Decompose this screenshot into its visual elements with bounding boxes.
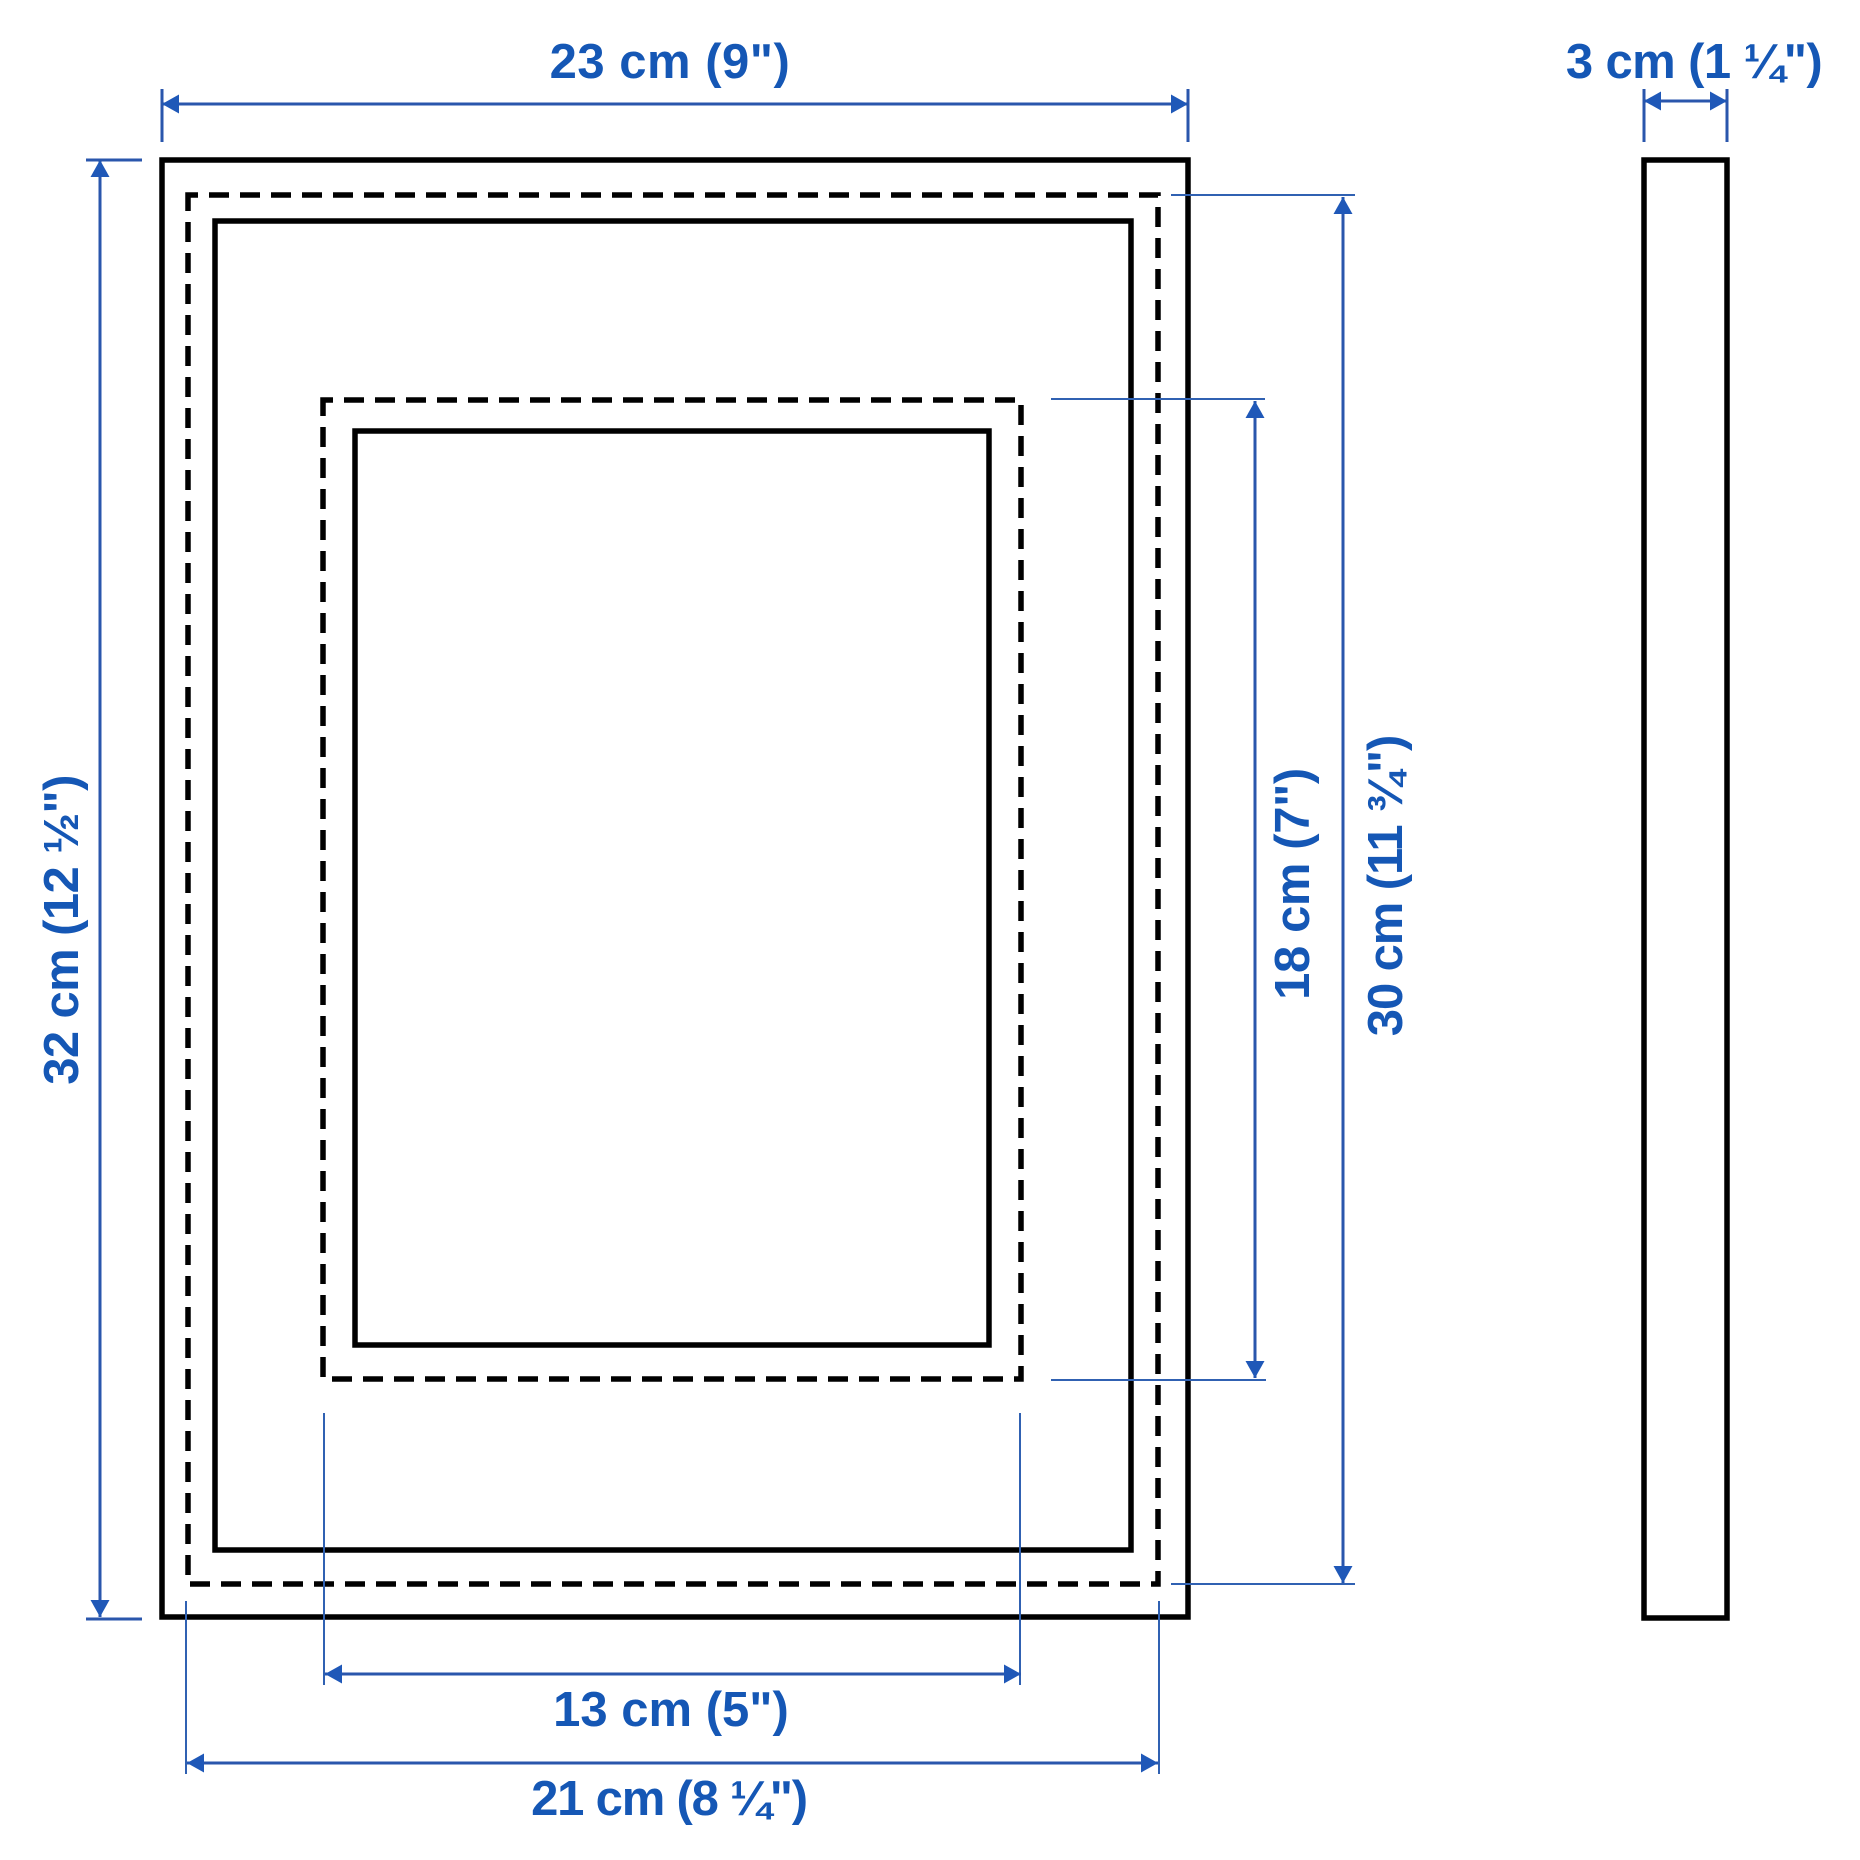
svg-text:18 cm (7"): 18 cm (7") xyxy=(1266,768,1320,1000)
svg-text:32 cm (12 ½"): 32 cm (12 ½") xyxy=(35,775,89,1085)
svg-text:23 cm (9"): 23 cm (9") xyxy=(550,35,791,89)
svg-text:21 cm (8 ¼"): 21 cm (8 ¼") xyxy=(531,1772,807,1826)
svg-text:3 cm (1 ¼"): 3 cm (1 ¼") xyxy=(1566,35,1822,89)
svg-text:13 cm (5"): 13 cm (5") xyxy=(553,1683,789,1737)
svg-text:30 cm (11 ¾"): 30 cm (11 ¾") xyxy=(1359,736,1413,1036)
